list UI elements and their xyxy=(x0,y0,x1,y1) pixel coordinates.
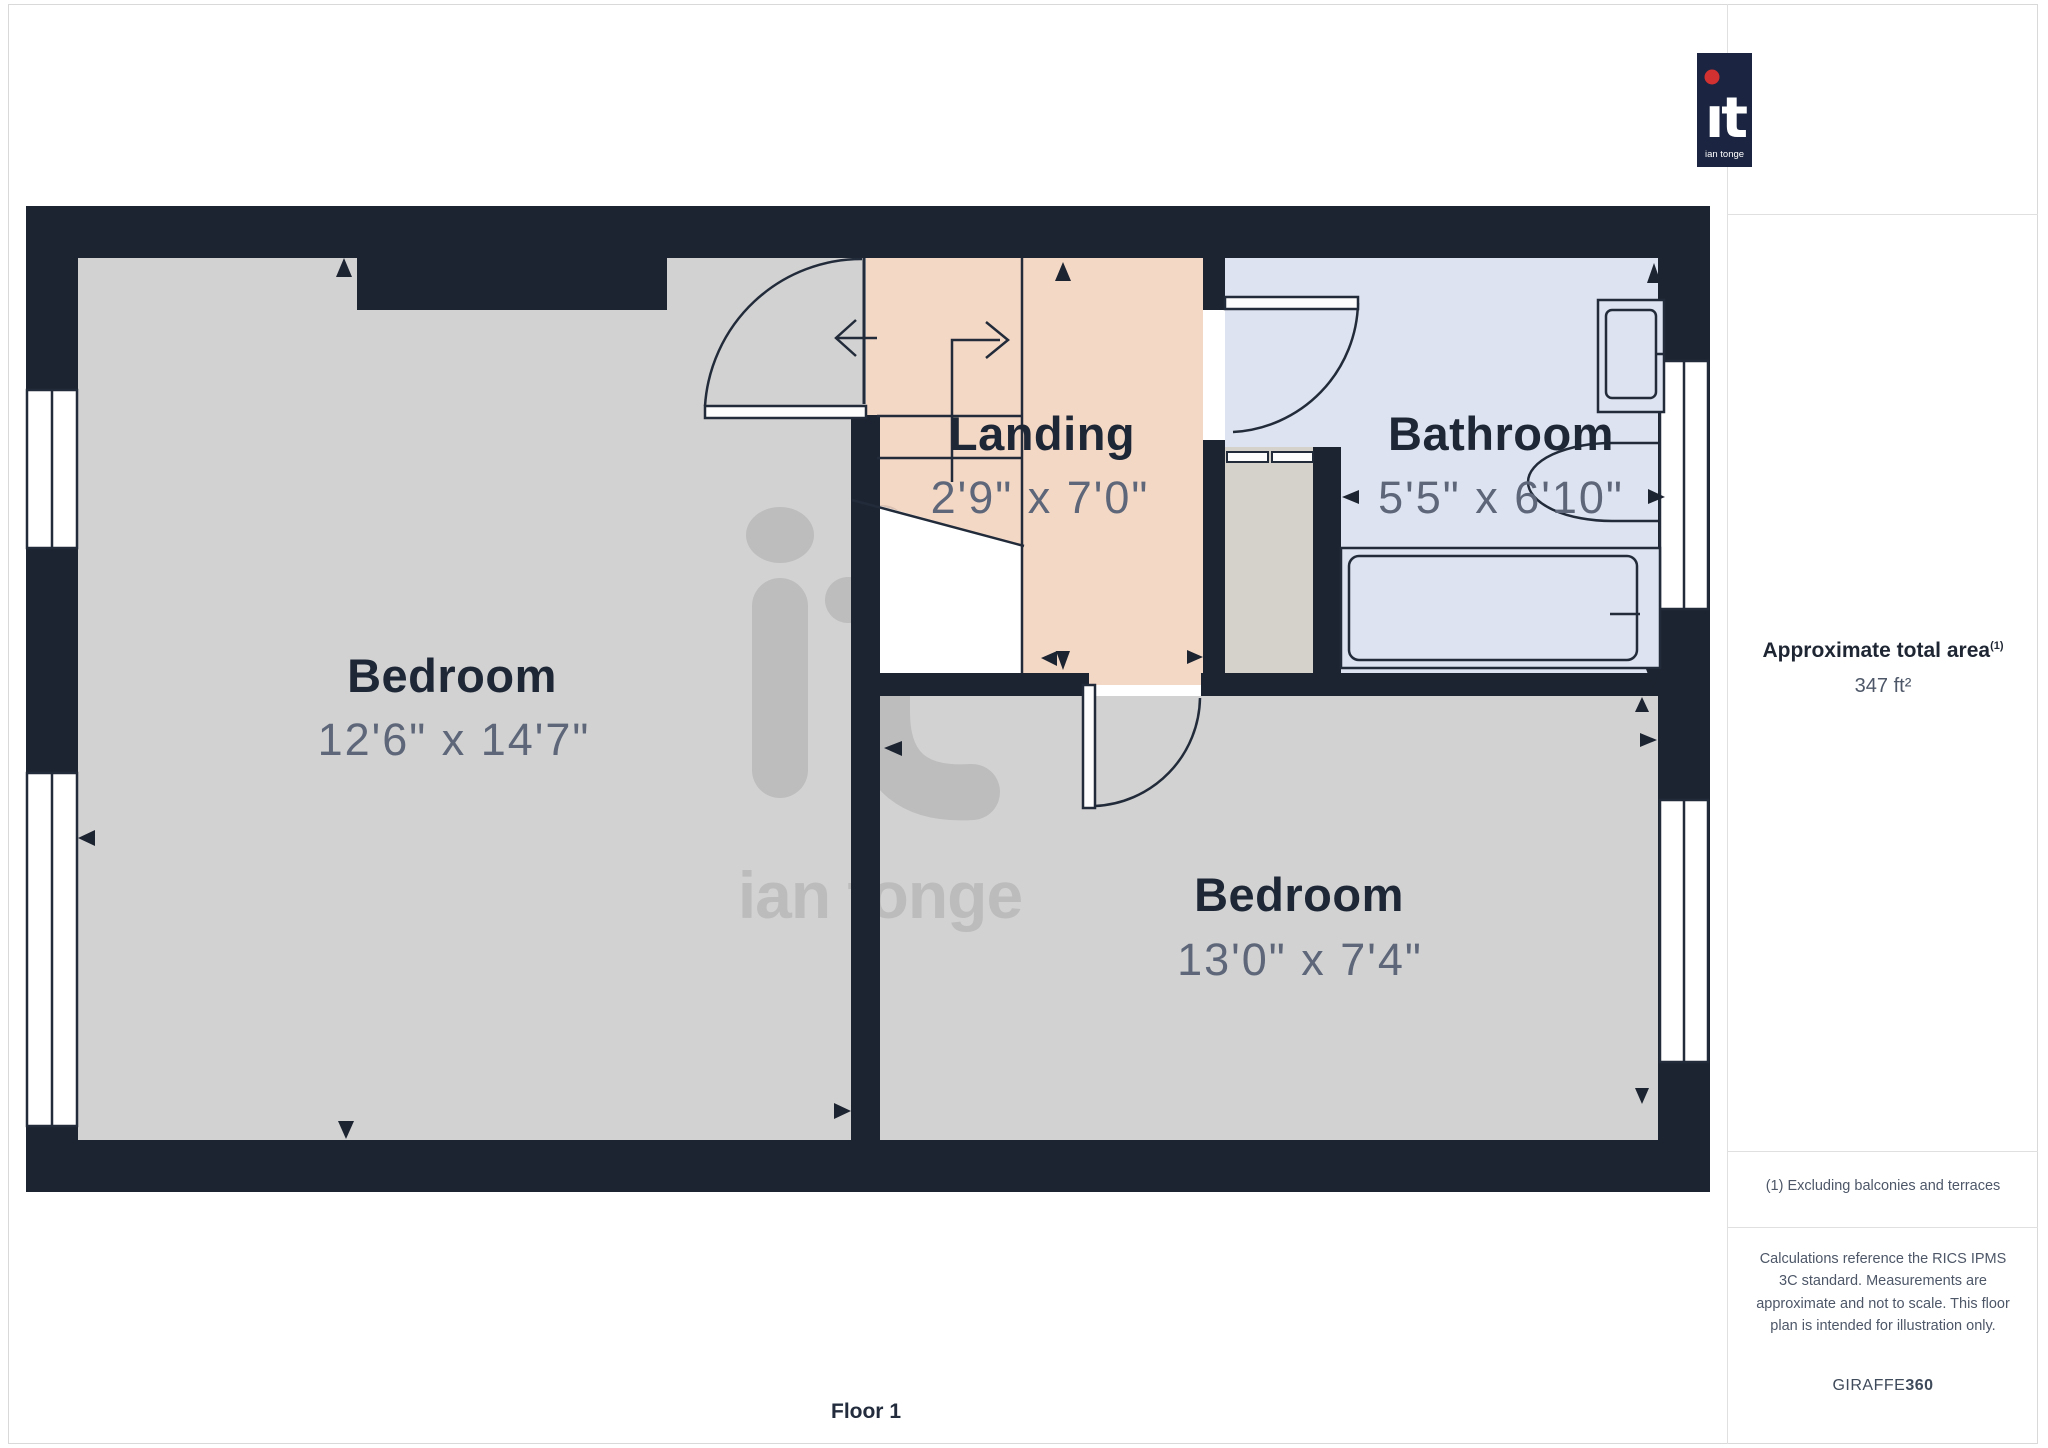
cupboard-door xyxy=(1272,452,1313,462)
giraffe360-suffix: 360 xyxy=(1905,1377,1933,1394)
wall-mid-vertical xyxy=(851,415,880,1140)
wall-landing-bathroom-bottom xyxy=(1203,440,1225,696)
agency-logo: ıt ian tonge xyxy=(1697,53,1752,167)
wall-bedroom2-top-right xyxy=(1201,673,1658,696)
room-label-landing: Landing xyxy=(949,406,1135,461)
room-label-bathroom: Bathroom xyxy=(1388,406,1614,461)
giraffe360-brand: GIRAFFE xyxy=(1832,1377,1905,1394)
room-dimensions-bedroom2: 13'0" x 7'4" xyxy=(1177,934,1423,986)
wall-bedroom2-top-left xyxy=(851,673,1089,696)
giraffe360-credit: GIRAFFE360 xyxy=(1832,1377,1933,1395)
logo-red-dot-icon xyxy=(1705,70,1720,85)
wall-top xyxy=(26,206,1710,258)
total-area-heading-text: Approximate total area xyxy=(1762,639,1990,662)
room-label-bedroom1: Bedroom xyxy=(347,648,557,703)
logo-it-text: ıt xyxy=(1705,86,1747,151)
cupboard-floor xyxy=(1225,447,1313,673)
wall-landing-bathroom-top xyxy=(1203,258,1225,310)
page: ian tonge xyxy=(0,0,2048,1448)
door-leaf xyxy=(1225,297,1358,309)
footnote: (1) Excluding balconies and terraces xyxy=(1766,1178,2001,1194)
cupboard-door xyxy=(1227,452,1268,462)
bathtub xyxy=(1341,548,1660,668)
door-leaf xyxy=(705,406,866,418)
wall-cupboard-right xyxy=(1313,447,1341,696)
room-label-bedroom2: Bedroom xyxy=(1194,867,1404,922)
door-leaf xyxy=(1083,685,1095,808)
agency-logo-glyph: ıt ian tonge xyxy=(1697,53,1752,167)
room-dimensions-landing: 2'9" x 7'0" xyxy=(931,472,1150,524)
total-area-superscript: (1) xyxy=(1990,640,2003,652)
total-area-heading: Approximate total area(1) xyxy=(1762,639,2003,663)
wall-top-notch xyxy=(357,258,667,310)
logo-sub-text: ian tonge xyxy=(1705,149,1744,160)
room-dimensions-bathroom: 5'5" x 6'10" xyxy=(1378,472,1624,524)
total-area-value: 347 ft² xyxy=(1855,675,1912,698)
room-dimensions-bedroom1: 12'6" x 14'7" xyxy=(318,714,591,766)
floor-plan: ian tonge xyxy=(0,0,2048,1448)
wall-bottom xyxy=(26,1140,1710,1192)
disclaimer: Calculations reference the RICS IPMS 3C … xyxy=(1753,1248,2013,1338)
floor-label: Floor 1 xyxy=(831,1400,901,1424)
watermark-i-dot xyxy=(746,507,814,563)
